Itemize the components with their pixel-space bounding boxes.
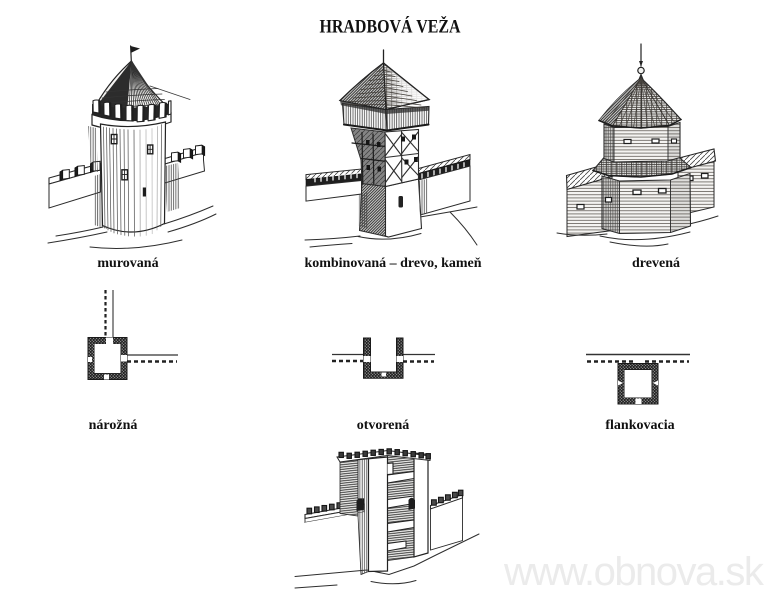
svg-text:murovaná: murovaná [97, 256, 158, 271]
svg-text:nárožná: nárožná [89, 418, 138, 433]
svg-text:HRADBOVÁ VEŽA: HRADBOVÁ VEŽA [320, 16, 461, 38]
svg-text:otvorená: otvorená [357, 418, 410, 433]
svg-text:drevená: drevená [632, 256, 680, 271]
svg-text:kombinovaná – drevo, kameň: kombinovaná – drevo, kameň [304, 256, 481, 271]
svg-text:flankovacia: flankovacia [605, 418, 674, 433]
